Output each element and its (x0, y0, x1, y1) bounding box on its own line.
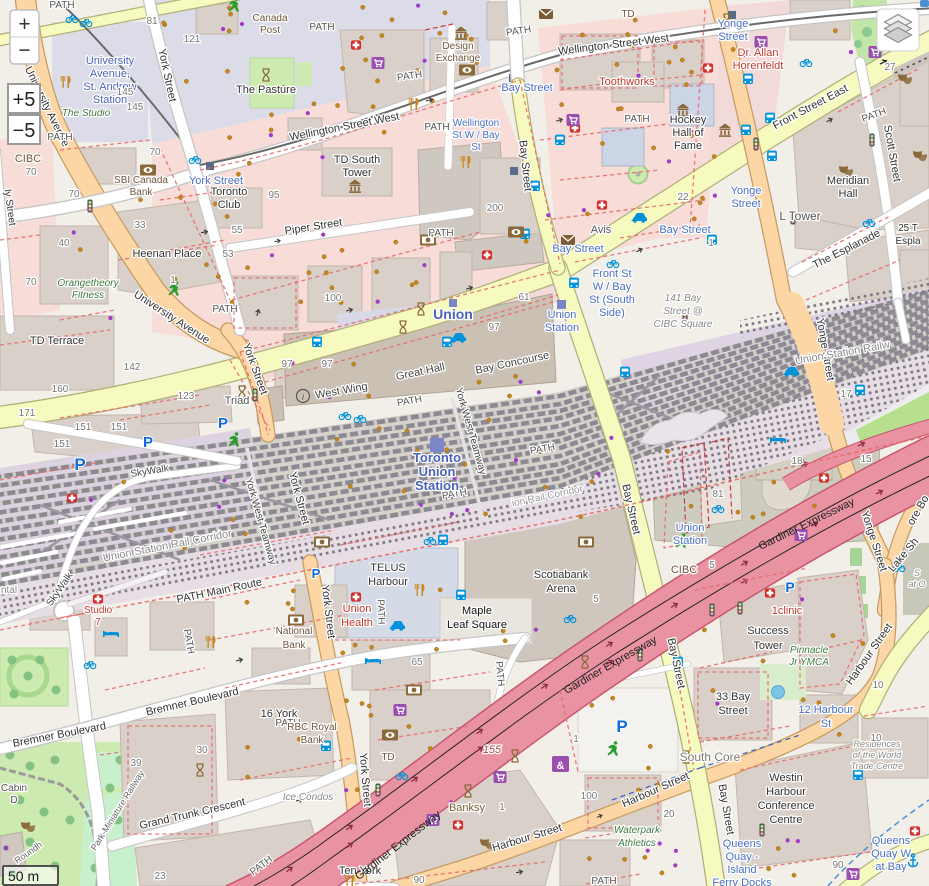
svg-text:145: 145 (117, 87, 134, 98)
svg-text:160: 160 (52, 384, 69, 395)
svg-text:Queens: Queens (872, 835, 911, 847)
svg-text:L Tower: L Tower (779, 209, 820, 223)
svg-text:151: 151 (111, 422, 128, 433)
svg-text:Street: Street (718, 705, 747, 717)
svg-text:TD South: TD South (334, 154, 380, 166)
svg-text:70: 70 (68, 189, 80, 200)
svg-text:D: D (10, 795, 17, 806)
svg-text:10: 10 (872, 680, 884, 691)
svg-text:Bank: Bank (301, 735, 325, 746)
svg-text:−: − (18, 39, 30, 62)
svg-text:33: 33 (134, 220, 146, 231)
svg-text:70: 70 (25, 277, 37, 288)
svg-text:CIBC Square: CIBC Square (654, 319, 713, 330)
svg-text:Side): Side) (599, 307, 625, 319)
svg-text:90: 90 (832, 860, 844, 871)
svg-text:1clinic: 1clinic (772, 605, 803, 617)
svg-text:1: 1 (499, 802, 505, 813)
svg-text:5: 5 (709, 560, 715, 571)
svg-text:Bank: Bank (283, 640, 307, 651)
svg-text:81: 81 (146, 16, 158, 27)
svg-text:St: St (471, 142, 481, 153)
svg-text:Waterpark: Waterpark (614, 825, 661, 836)
svg-text:151: 151 (75, 422, 92, 433)
svg-text:W / Bay: W / Bay (593, 281, 632, 293)
svg-text:Conference: Conference (758, 800, 815, 812)
svg-text:PATH: PATH (49, 0, 74, 11)
svg-text:70: 70 (25, 167, 37, 178)
svg-text:7: 7 (95, 617, 101, 628)
svg-text:The Studio: The Studio (62, 108, 111, 119)
svg-text:CIBC: CIBC (671, 564, 697, 576)
svg-text:Union: Union (433, 306, 473, 322)
svg-text:1: 1 (573, 734, 579, 745)
svg-text:PATH: PATH (493, 661, 506, 687)
svg-text:South Core: South Core (680, 750, 741, 764)
svg-text:145: 145 (127, 102, 144, 113)
svg-text:Hall of: Hall of (672, 127, 704, 139)
svg-text:23: 23 (154, 871, 166, 882)
svg-text:Scotiabank: Scotiabank (534, 569, 589, 581)
svg-text:Maple: Maple (462, 605, 492, 617)
svg-text:25 T: 25 T (898, 223, 918, 234)
svg-text:123: 123 (178, 391, 195, 402)
svg-text:TD: TD (621, 9, 634, 20)
svg-text:Avenue,: Avenue, (90, 68, 130, 80)
svg-text:Jr YMCA: Jr YMCA (788, 657, 829, 668)
svg-text:Banksy: Banksy (449, 802, 486, 814)
svg-text:100: 100 (325, 293, 342, 304)
svg-text:Street @: Street @ (663, 306, 703, 317)
svg-text:100: 100 (581, 791, 598, 802)
svg-text:Island: Island (727, 864, 756, 876)
svg-text:70: 70 (149, 147, 161, 158)
svg-text:Health: Health (341, 617, 373, 629)
svg-text:P: P (785, 579, 794, 595)
svg-text:Bank: Bank (130, 187, 154, 198)
svg-text:PATH: PATH (424, 122, 449, 133)
svg-text:55: 55 (231, 225, 243, 236)
svg-text:Toothworks: Toothworks (599, 76, 655, 88)
svg-text:Club: Club (218, 199, 241, 211)
svg-text:PATH: PATH (309, 22, 334, 33)
svg-text:Wellington: Wellington (453, 118, 500, 129)
svg-text:Hockey: Hockey (670, 114, 707, 126)
svg-text:Tower: Tower (753, 640, 783, 652)
svg-text:Leaf Square: Leaf Square (447, 619, 507, 631)
svg-text:Queens: Queens (723, 838, 762, 850)
svg-text:10: 10 (870, 733, 882, 744)
svg-text:27: 27 (884, 62, 896, 73)
svg-text:Centre: Centre (769, 814, 802, 826)
svg-text:Bay Street: Bay Street (501, 82, 552, 94)
svg-text:of the World: of the World (853, 750, 903, 760)
svg-text:University: University (86, 55, 135, 67)
svg-text:15: 15 (860, 454, 872, 465)
svg-text:Street: Street (731, 198, 760, 210)
svg-text:National: National (276, 626, 313, 637)
svg-text:at Bay: at Bay (875, 861, 907, 873)
svg-text:ntal: ntal (1, 585, 17, 596)
svg-text:Athletics: Athletics (617, 838, 656, 849)
svg-text:TELUS: TELUS (370, 562, 405, 574)
svg-text:Trade Centre: Trade Centre (851, 761, 903, 771)
svg-text:Espla: Espla (895, 236, 920, 247)
svg-text:PATH: PATH (591, 876, 616, 886)
svg-text:Studio: Studio (84, 605, 113, 616)
svg-text:Union: Union (548, 309, 577, 321)
svg-text:Meridian: Meridian (827, 175, 869, 187)
svg-text:Avis: Avis (591, 224, 612, 236)
svg-text:33 Bay: 33 Bay (716, 691, 751, 703)
svg-text:39: 39 (130, 758, 142, 769)
svg-text:−5: −5 (13, 120, 36, 142)
svg-text:Union: Union (343, 603, 372, 615)
svg-text:61: 61 (518, 292, 530, 303)
svg-text:Dr. Allan: Dr. Allan (738, 47, 779, 59)
svg-text:P: P (74, 455, 85, 474)
svg-text:P: P (143, 434, 153, 451)
svg-text:&: & (557, 760, 565, 772)
svg-text:Yonge: Yonge (718, 18, 749, 30)
svg-text:95: 95 (268, 190, 280, 201)
svg-text:65: 65 (411, 657, 423, 668)
svg-text:Post: Post (260, 25, 280, 36)
svg-text:97: 97 (488, 322, 500, 333)
svg-text:121: 121 (184, 34, 201, 45)
svg-text:5: 5 (593, 594, 599, 605)
svg-text:St W / Bay: St W / Bay (452, 130, 499, 141)
svg-text:81: 81 (712, 489, 724, 500)
svg-text:155: 155 (483, 744, 502, 756)
svg-text:SBI Canada: SBI Canada (114, 175, 168, 186)
svg-text:97: 97 (281, 359, 293, 370)
svg-text:17: 17 (840, 389, 852, 400)
svg-text:Canada: Canada (252, 13, 287, 24)
svg-text:TD Terrace: TD Terrace (30, 335, 84, 347)
svg-text:142: 142 (124, 362, 141, 373)
svg-text:200: 200 (487, 203, 504, 214)
svg-text:Ice Condos: Ice Condos (283, 792, 334, 803)
svg-text:Heenan Place: Heenan Place (132, 248, 201, 260)
svg-text:Cabin: Cabin (1, 783, 27, 794)
svg-text:P: P (312, 566, 321, 581)
svg-text:Union: Union (676, 522, 705, 534)
svg-text:Triad: Triad (225, 395, 250, 407)
svg-text:40: 40 (58, 238, 70, 249)
svg-text:St (South: St (South (589, 294, 635, 306)
svg-text:18: 18 (791, 456, 803, 467)
svg-text:12 Harbour: 12 Harbour (798, 704, 853, 716)
svg-text:Arena: Arena (546, 583, 576, 595)
svg-text:Street: Street (718, 31, 747, 43)
svg-text:Harbour: Harbour (368, 576, 408, 588)
svg-text:Yonge: Yonge (731, 185, 762, 197)
svg-text:Union: Union (419, 464, 456, 479)
svg-text:151: 151 (54, 439, 71, 450)
svg-text:Bay Street: Bay Street (552, 243, 603, 255)
svg-text:Toronto: Toronto (211, 186, 248, 198)
svg-text:Hall: Hall (839, 188, 858, 200)
svg-text:53: 53 (222, 249, 234, 260)
svg-text:171: 171 (19, 408, 36, 419)
svg-text:22: 22 (677, 192, 689, 203)
svg-text:TD: TD (381, 752, 394, 763)
svg-text:P: P (218, 415, 228, 432)
svg-text:Exchange: Exchange (436, 53, 481, 64)
svg-text:Bay Street: Bay Street (659, 224, 710, 236)
svg-text:P: P (616, 717, 627, 736)
svg-text:+: + (18, 13, 30, 36)
svg-text:Toronto: Toronto (413, 450, 461, 465)
svg-text:PATH: PATH (375, 599, 387, 625)
svg-text:PATH: PATH (428, 228, 453, 239)
svg-text:Tower: Tower (342, 167, 372, 179)
svg-text:Station: Station (545, 322, 579, 334)
svg-text:Front St: Front St (592, 268, 631, 280)
svg-text:20: 20 (663, 809, 675, 820)
svg-text:Quay W: Quay W (871, 848, 911, 860)
svg-text:Fitness: Fitness (72, 290, 104, 301)
svg-text:Fame: Fame (674, 140, 702, 152)
svg-text:1: 1 (708, 238, 714, 249)
svg-text:PATH: PATH (212, 304, 237, 315)
svg-text:Success: Success (747, 625, 789, 637)
svg-text:50 m: 50 m (8, 868, 39, 884)
svg-text:Station: Station (673, 535, 707, 547)
svg-text:141 Bay: 141 Bay (665, 293, 703, 304)
svg-text:1: 1 (170, 275, 176, 286)
svg-text:at O: at O (908, 579, 925, 589)
svg-text:CIBC: CIBC (15, 153, 41, 165)
svg-text:Harbour: Harbour (766, 786, 806, 798)
svg-text:Westin: Westin (769, 772, 802, 784)
svg-text:97: 97 (321, 359, 333, 370)
svg-text:30: 30 (196, 745, 208, 756)
svg-text:The Pasture: The Pasture (236, 84, 296, 96)
svg-text:Station: Station (415, 478, 459, 493)
svg-text:16 York: 16 York (261, 708, 298, 720)
svg-text:Quay -: Quay - (725, 851, 758, 863)
svg-text:St: St (821, 718, 831, 730)
svg-text:Ferry Docks: Ferry Docks (712, 877, 772, 886)
svg-text:S: S (914, 568, 920, 578)
svg-text:90: 90 (413, 875, 425, 886)
svg-text:Orangetheory: Orangetheory (57, 278, 119, 289)
svg-text:York Street: York Street (189, 175, 243, 187)
svg-text:Pinnacle: Pinnacle (790, 645, 829, 656)
svg-text:RBC Royal: RBC Royal (287, 722, 336, 733)
svg-text:Design: Design (442, 41, 473, 52)
svg-text:PATH: PATH (624, 114, 649, 125)
svg-text:PATH: PATH (47, 132, 72, 143)
svg-text:Horenfeldt: Horenfeldt (733, 60, 784, 72)
svg-text:+5: +5 (13, 89, 36, 111)
